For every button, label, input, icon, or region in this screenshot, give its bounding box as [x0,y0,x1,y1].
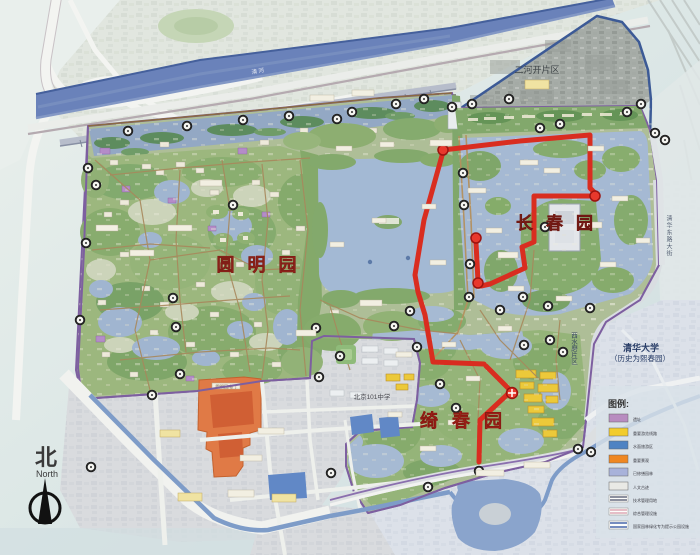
svg-text:清华东路大街: 清华东路大街 [665,214,672,257]
svg-text:国家园林绿化专为提示公园设施: 国家园林绿化专为提示公园设施 [633,523,689,529]
svg-text:人文古迹: 人文古迹 [633,484,649,490]
svg-text:重要景观: 重要景观 [633,457,649,463]
svg-text:综合管理设施: 综合管理设施 [633,510,657,516]
svg-text:技术管理用地: 技术管理用地 [633,497,657,503]
svg-text:重要游览线路: 重要游览线路 [633,430,657,436]
svg-text:水面旅游区: 水面旅游区 [633,443,653,449]
svg-text:北: 北 [35,445,57,470]
svg-text:圆明园: 圆明园 [217,255,310,275]
svg-text:遗址: 遗址 [633,416,641,422]
svg-text:已修缮园林: 已修缮园林 [633,470,653,476]
svg-text:（历史为熙春园）: （历史为熙春园） [610,353,670,363]
svg-text:二河开片区: 二河开片区 [514,64,559,75]
svg-text:清华大学: 清华大学 [623,342,659,353]
svg-text:North: North [36,469,58,479]
svg-text:绮春园: 绮春园 [420,410,516,431]
svg-text:北京101中学: 北京101中学 [354,392,391,401]
svg-text:长春园: 长春园 [516,213,606,233]
svg-text:图例:: 图例: [608,398,629,409]
